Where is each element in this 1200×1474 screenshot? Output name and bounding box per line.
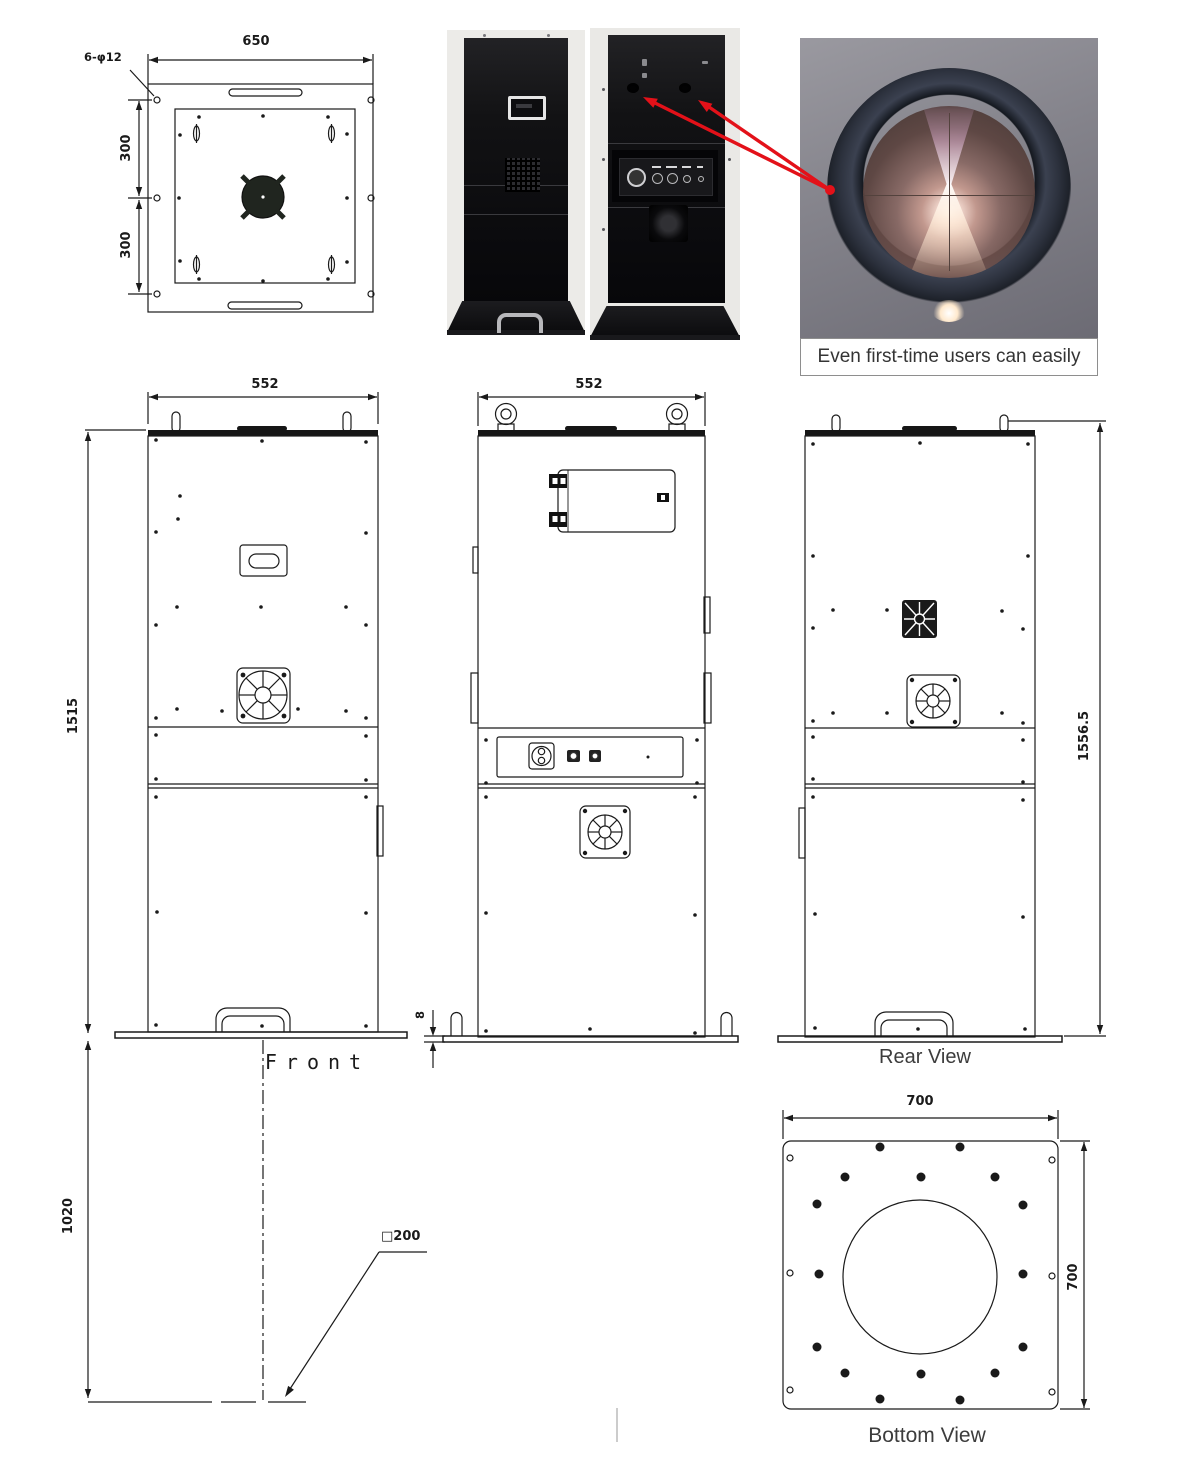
fresnel-lens: [863, 106, 1035, 278]
spec-sheet-page: Even first-time users can easily: [0, 0, 1200, 1474]
rear-photo: [590, 28, 740, 340]
rear-fan: [649, 205, 688, 242]
power-connector: [627, 168, 646, 187]
dim-top-upper-height: 300: [120, 128, 134, 168]
lens-port-hole: [679, 83, 691, 93]
dim-bottom-height: 700: [1067, 1255, 1081, 1299]
dim-bottom-width: 700: [890, 1095, 950, 1109]
io-connector: [683, 175, 691, 183]
dim-square-callout: □200: [381, 1230, 433, 1244]
dim-front-width: 552: [235, 378, 295, 392]
front-view-label: Front: [255, 1050, 380, 1074]
lens-photo: [800, 38, 1098, 338]
dim-top-lower-height: 300: [120, 225, 134, 265]
front-view-drawing: [85, 392, 427, 1402]
crosshair-vertical: [949, 113, 950, 271]
bottom-view-drawing: [783, 1110, 1090, 1409]
top-screw: [547, 34, 550, 37]
io-connector: [667, 173, 678, 184]
rear-view-label: Rear View: [845, 1046, 1005, 1069]
io-connector: [698, 176, 704, 182]
dim-top-width: 650: [226, 35, 286, 49]
dim-center-width: 552: [559, 378, 619, 392]
lens-caption-box: Even first-time users can easily: [800, 338, 1098, 376]
dim-front-height: 1515: [67, 688, 81, 744]
top-screw: [483, 34, 486, 37]
dim-holes-callout: 6-φ12: [84, 50, 144, 64]
front-recessed-handle: [508, 96, 546, 120]
lens-caption-text: Even first-time users can easily: [818, 346, 1081, 368]
center-view-drawing: [424, 392, 738, 1068]
dim-rear-height: 1556.5: [1078, 701, 1092, 771]
front-vent-grille: [505, 158, 540, 192]
lens-port-hole: [627, 83, 639, 93]
rear-view-drawing: [778, 415, 1106, 1042]
rear-io-panel: [612, 150, 718, 202]
dim-base-thickness: 8: [413, 1006, 427, 1024]
front-photo: [447, 30, 585, 335]
top-view-drawing: [128, 54, 374, 312]
dim-ground-clearance: 1020: [62, 1188, 76, 1244]
bottom-view-label: Bottom View: [837, 1424, 1017, 1448]
lamp-glow: [932, 300, 966, 322]
base-handle: [497, 313, 543, 333]
io-connector: [652, 173, 663, 184]
